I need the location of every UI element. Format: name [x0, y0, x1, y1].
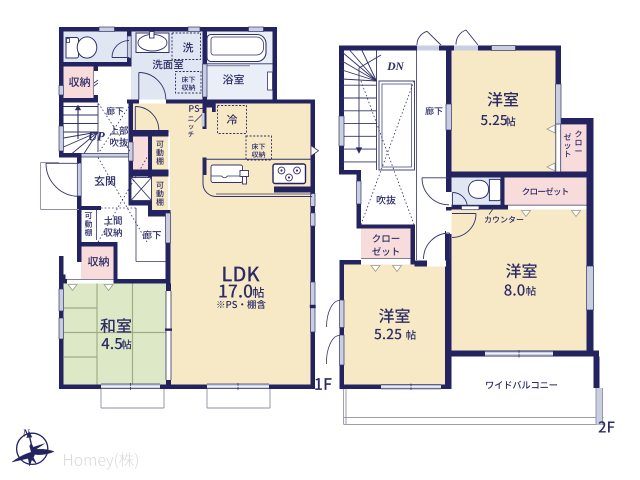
svg-text:DN: DN — [386, 61, 404, 73]
svg-text:UP: UP — [88, 130, 105, 144]
svg-text:N: N — [22, 429, 31, 440]
